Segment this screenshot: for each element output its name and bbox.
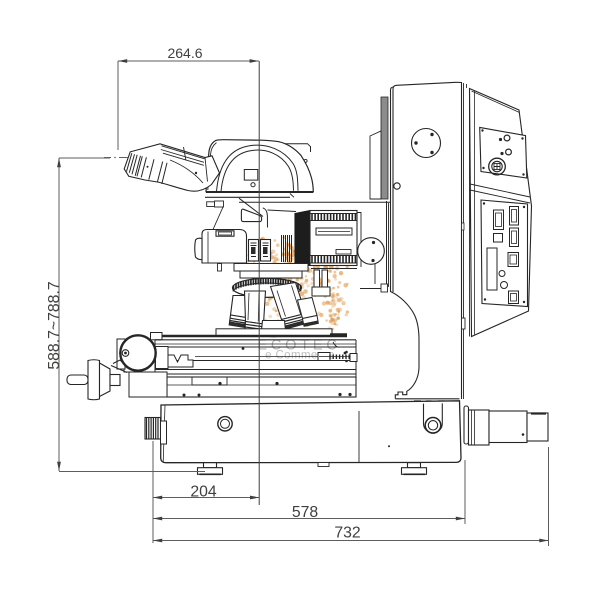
- svg-text:578: 578: [292, 504, 319, 521]
- svg-text:588.7~788.7: 588.7~788.7: [46, 281, 63, 369]
- svg-text:204: 204: [190, 484, 217, 501]
- svg-text:264.6: 264.6: [167, 45, 202, 61]
- svg-text:732: 732: [334, 525, 360, 542]
